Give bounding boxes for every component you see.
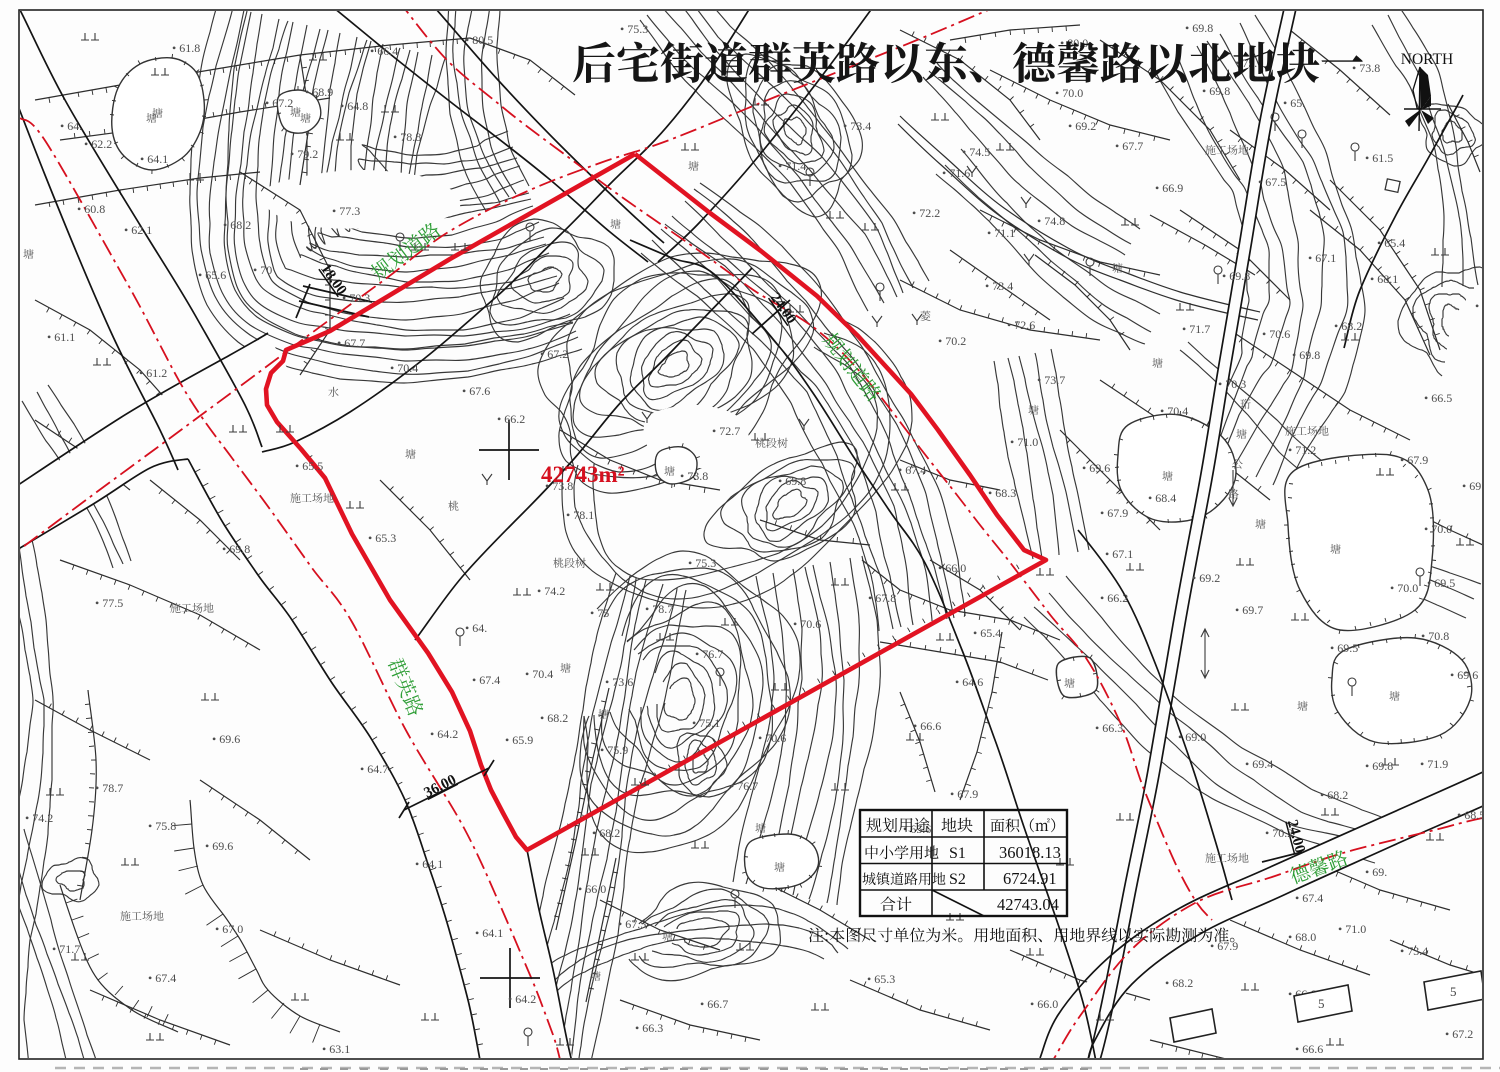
- svg-text:• 67.7: • 67.7: [337, 336, 365, 350]
- svg-text:• 65.4: • 65.4: [1377, 236, 1405, 250]
- svg-text:• 69.8: • 69.8: [1222, 269, 1250, 283]
- svg-text:• 66.4: • 66.4: [370, 44, 398, 58]
- svg-text:• 74.2: • 74.2: [537, 584, 565, 598]
- svg-text:• 69.: • 69.: [1365, 865, 1387, 879]
- svg-text:• 67.2: • 67.2: [1445, 1027, 1473, 1041]
- svg-text:• 62.1: • 62.1: [124, 223, 152, 237]
- svg-text:• 65.6: • 65.6: [198, 268, 226, 282]
- svg-text:6724.91: 6724.91: [1003, 869, 1057, 888]
- svg-text:• 64.7: • 64.7: [360, 762, 388, 776]
- svg-text:• 74.5: • 74.5: [962, 145, 990, 159]
- svg-text:• 68.2: • 68.2: [223, 218, 251, 232]
- svg-text:• 76.7: • 76.7: [695, 647, 723, 661]
- svg-text:• 65.3: • 65.3: [867, 972, 895, 986]
- svg-text:• 75.8: • 75.8: [148, 819, 176, 833]
- svg-text:• 60.8: • 60.8: [77, 202, 105, 216]
- svg-text:• 72.7: • 72.7: [712, 424, 740, 438]
- svg-text:• 66.0: • 66.0: [578, 882, 606, 896]
- svg-text:• 67.1: • 67.1: [1105, 547, 1133, 561]
- svg-text:• 66.2: • 66.2: [497, 412, 525, 426]
- svg-text:5: 5: [1450, 984, 1457, 999]
- svg-text:• 64.2: • 64.2: [430, 727, 458, 741]
- svg-text:• 69.2: • 69.2: [1068, 119, 1096, 133]
- svg-text:• 67.1: • 67.1: [1308, 251, 1336, 265]
- svg-text:• 73.4: • 73.4: [985, 279, 1013, 293]
- svg-text:• 77.5: • 77.5: [95, 596, 123, 610]
- svg-text:• 61.8: • 61.8: [172, 41, 200, 55]
- svg-text:S2: S2: [949, 871, 966, 888]
- svg-text:• 66.0: • 66.0: [1030, 997, 1058, 1011]
- svg-text:• 67.2: • 67.2: [265, 96, 293, 110]
- svg-text:• 69.7: • 69.7: [1235, 603, 1263, 617]
- svg-text:• 71.9: • 71.9: [1420, 757, 1448, 771]
- svg-text:• 71.0: • 71.0: [1338, 922, 1366, 936]
- svg-text:• 66.9: • 66.9: [1155, 181, 1183, 195]
- svg-text:• 69.8: • 69.8: [1202, 84, 1230, 98]
- svg-text:• 73.4: • 73.4: [843, 119, 871, 133]
- svg-text:• 73.7: • 73.7: [1037, 373, 1065, 387]
- svg-text:• 68.2: • 68.2: [1320, 788, 1348, 802]
- svg-text:• 66.7: • 66.7: [700, 997, 728, 1011]
- svg-text:• 70.3: • 70.3: [342, 291, 370, 305]
- svg-text:• 64.: • 64.: [465, 621, 487, 635]
- svg-text:• 69.6: • 69.6: [1082, 461, 1110, 475]
- svg-text:• 70.6: • 70.6: [1262, 327, 1290, 341]
- svg-text:• 73.4: • 73.4: [1400, 944, 1428, 958]
- svg-text:• 70.4: • 70.4: [525, 667, 553, 681]
- svg-text:• 70.0: • 70.0: [1424, 522, 1452, 536]
- svg-text:• 70.2: • 70.2: [938, 334, 966, 348]
- svg-text:• 66.2: • 66.2: [1100, 591, 1128, 605]
- svg-text:• 78.1: • 78.1: [566, 508, 594, 522]
- svg-text:• 79.2: • 79.2: [290, 147, 318, 161]
- svg-text:• 65.3: • 65.3: [368, 531, 396, 545]
- svg-text:• 68.1: • 68.1: [1370, 272, 1398, 286]
- svg-text:• 67.9: • 67.9: [1400, 453, 1428, 467]
- svg-text:• 64.1: • 64.1: [140, 152, 168, 166]
- svg-text:• 70.2: • 70.2: [1265, 826, 1293, 840]
- svg-text:• 71.2: • 71.2: [1288, 443, 1316, 457]
- svg-text:• 78.7: • 78.7: [95, 781, 123, 795]
- svg-text:• 67.4: • 67.4: [472, 673, 500, 687]
- svg-text:• 69.6: • 69.6: [212, 732, 240, 746]
- svg-text:• 67.4: • 67.4: [898, 463, 926, 477]
- svg-text:• 75.3: • 75.3: [620, 22, 648, 36]
- svg-text:• 75.3: • 75.3: [688, 556, 716, 570]
- svg-text:• 66.3: • 66.3: [1095, 721, 1123, 735]
- svg-text:• 67.4: • 67.4: [1295, 891, 1323, 905]
- svg-text:• 69.8: • 69.8: [222, 542, 250, 556]
- svg-text:• 64.6: • 64.6: [955, 675, 983, 689]
- svg-text:• 68.2: • 68.2: [592, 826, 620, 840]
- svg-text:• 66.6: • 66.6: [913, 719, 941, 733]
- svg-text:• 66.6: • 66.6: [1295, 1042, 1323, 1056]
- svg-text:• 71.1: • 71.1: [987, 226, 1015, 240]
- svg-text:• 75.9: • 75.9: [600, 743, 628, 757]
- svg-text:• 68.2: • 68.2: [1334, 319, 1362, 333]
- svg-text:• 70.0: • 70.0: [1055, 86, 1083, 100]
- svg-text:• 61.1: • 61.1: [47, 330, 75, 344]
- svg-text:• 69.4: • 69.4: [1245, 757, 1273, 771]
- svg-text:• 73.8: • 73.8: [1352, 61, 1380, 75]
- svg-text:• 65.4: • 65.4: [973, 626, 1001, 640]
- svg-text:NORTH: NORTH: [1401, 51, 1453, 68]
- svg-text:• 69.2: • 69.2: [1192, 571, 1220, 585]
- svg-text:• 70.8: • 70.8: [1421, 629, 1449, 643]
- svg-text:• 69.5: • 69.5: [1330, 641, 1358, 655]
- svg-text:• 69.8: • 69.8: [1292, 348, 1320, 362]
- svg-text:• 78.7: • 78.7: [645, 602, 673, 616]
- svg-text:• 69.8: • 69.8: [778, 474, 806, 488]
- svg-text:5: 5: [1318, 996, 1325, 1011]
- svg-text:S1: S1: [949, 845, 966, 862]
- svg-text:• 70.3: • 70.3: [1218, 377, 1246, 391]
- svg-text:• 68.5: • 68.5: [1457, 808, 1485, 822]
- svg-text:• 67.8: • 67.8: [868, 591, 896, 605]
- svg-text:• 69.8: • 69.8: [1365, 759, 1393, 773]
- svg-text:• 65.: • 65.: [1283, 96, 1305, 110]
- svg-text:• 69.6: • 69.6: [1450, 668, 1478, 682]
- svg-text:36018.13: 36018.13: [999, 843, 1061, 862]
- svg-text:• 72.2: • 72.2: [912, 206, 940, 220]
- svg-text:• 64.8: • 64.8: [340, 99, 368, 113]
- svg-text:• 64.1: • 64.1: [475, 926, 503, 940]
- svg-text:• 70.6: • 70.6: [758, 731, 786, 745]
- svg-text:• 68.9: • 68.9: [305, 85, 333, 99]
- svg-text:• 69.8: • 69.8: [1185, 21, 1213, 35]
- svg-text:• 77.3: • 77.3: [332, 204, 360, 218]
- svg-text:• 61.5: • 61.5: [1365, 151, 1393, 165]
- svg-text:42743.04: 42743.04: [997, 895, 1059, 914]
- svg-text:• 70.4: • 70.4: [1160, 404, 1188, 418]
- svg-text:• 76.7: • 76.7: [730, 779, 758, 793]
- svg-text:• 64.2: • 64.2: [508, 992, 536, 1006]
- svg-text:• 64.1: • 64.1: [415, 857, 443, 871]
- svg-text:• 70.0: • 70.0: [1390, 581, 1418, 595]
- svg-text:• 73.8: • 73.8: [680, 469, 708, 483]
- svg-text:• 68.0: • 68.0: [1288, 930, 1316, 944]
- svg-text:• 69.0: • 69.0: [1178, 730, 1206, 744]
- svg-text:• 70.4: • 70.4: [390, 361, 418, 375]
- svg-text:• 65.9: • 65.9: [505, 733, 533, 747]
- svg-text:• 67.9: • 67.9: [1100, 506, 1128, 520]
- svg-text:• 72.6: • 72.6: [1007, 318, 1035, 332]
- svg-text:• 71.6: • 71.6: [942, 166, 970, 180]
- svg-text:• 71.0: • 71.0: [1010, 435, 1038, 449]
- svg-text:• 67.5: • 67.5: [618, 917, 646, 931]
- svg-text:• 67.2: • 67.2: [540, 347, 568, 361]
- svg-text:• 67.7: • 67.7: [1115, 139, 1143, 153]
- svg-text:• 73.6: • 73.6: [605, 675, 633, 689]
- svg-text:• 68.2: • 68.2: [540, 711, 568, 725]
- svg-text:• 68.3: • 68.3: [988, 486, 1016, 500]
- svg-text:42743m²: 42743m²: [541, 462, 625, 487]
- svg-text:• 67.5: • 67.5: [1258, 175, 1286, 189]
- svg-text:• 75: • 75: [590, 606, 609, 620]
- svg-text:• 71.7: • 71.7: [52, 942, 80, 956]
- svg-text:• 74.2: • 74.2: [25, 811, 53, 825]
- svg-text:• 64.: • 64.: [60, 119, 82, 133]
- svg-text:• 70: • 70: [253, 263, 272, 277]
- svg-text:• 67.9: • 67.9: [950, 787, 978, 801]
- svg-text:• 75.1: • 75.1: [692, 716, 720, 730]
- svg-text:• 74.8: • 74.8: [1037, 214, 1065, 228]
- svg-text:• 78.8: • 78.8: [393, 130, 421, 144]
- svg-text:• 70.6: • 70.6: [793, 617, 821, 631]
- svg-text:• 67.6: • 67.6: [462, 384, 490, 398]
- svg-text:• 71.7: • 71.7: [1182, 322, 1210, 336]
- svg-text:• 65.5: • 65.5: [295, 459, 323, 473]
- svg-text:• 69.6: • 69.6: [205, 839, 233, 853]
- svg-text:• 61.2: • 61.2: [139, 366, 167, 380]
- svg-text:• 71.4: • 71.4: [778, 159, 806, 173]
- svg-text:• 66.3: • 66.3: [635, 1021, 663, 1035]
- svg-text:• 68.2: • 68.2: [1165, 976, 1193, 990]
- svg-text:• 67.0: • 67.0: [215, 922, 243, 936]
- svg-text:• 67.4: • 67.4: [148, 971, 176, 985]
- svg-text:• 66.0: • 66.0: [938, 561, 966, 575]
- svg-text:• 69.5: • 69.5: [1427, 576, 1455, 590]
- svg-text:• 66.5: • 66.5: [1424, 391, 1452, 405]
- svg-text:• 62.2: • 62.2: [84, 137, 112, 151]
- svg-text:• 68.4: • 68.4: [1148, 491, 1176, 505]
- svg-text:• 80.5: • 80.5: [465, 33, 493, 47]
- svg-text:• 63.1: • 63.1: [322, 1042, 350, 1056]
